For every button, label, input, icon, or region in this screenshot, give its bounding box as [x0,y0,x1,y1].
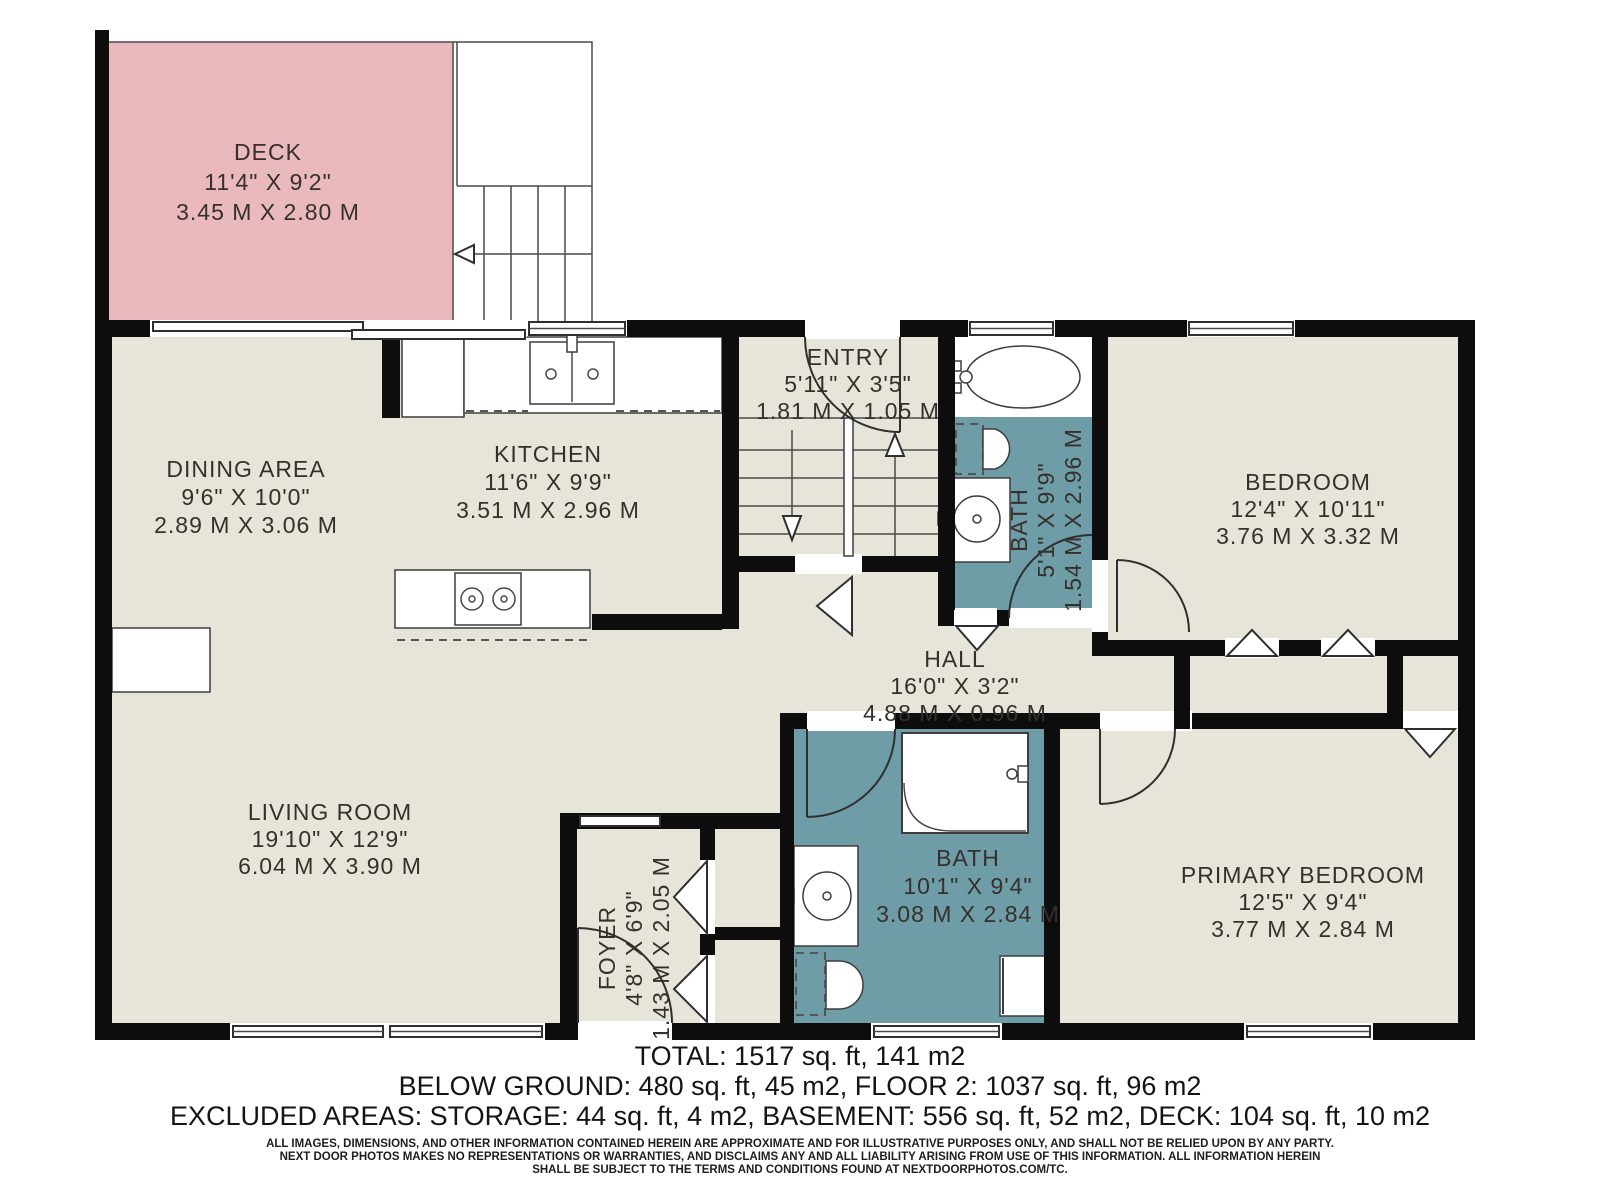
living-label: LIVING ROOM [248,799,412,825]
bath-main-dims-metric: 3.08 M X 2.84 M [876,901,1060,927]
exterior-stairs [455,186,592,322]
entry-dims-imperial: 5'11" X 3'5" [784,371,911,397]
bathtub [966,346,1080,408]
primary-dims-metric: 3.77 M X 2.84 M [1211,916,1395,942]
summary-excluded: EXCLUDED AREAS: STORAGE: 44 sq. ft, 4 m2… [0,1101,1600,1131]
hall-dims-metric: 4.88 M X 0.96 M [863,700,1047,726]
bath-main-label: BATH [936,845,1000,871]
entry-dims-metric: 1.81 M X 1.05 M [756,398,940,424]
living-dims-metric: 6.04 M X 3.90 M [238,853,422,879]
disclaimer-line-1: ALL IMAGES, DIMENSIONS, AND OTHER INFORM… [0,1138,1600,1151]
living-room-window [230,1023,545,1040]
floorplan-page: DECK 11'4" X 9'2" 3.45 M X 2.80 M DINING… [0,0,1600,1200]
patio-sliding-door [150,320,527,339]
bath-upper-window [970,322,1053,335]
dining-label: DINING AREA [166,456,325,482]
bedroom-dims-imperial: 12'4" X 10'11" [1230,496,1385,522]
summary-total: TOTAL: 1517 sq. ft, 141 m2 [0,1041,1600,1071]
deck-dims-imperial: 11'4" X 9'2" [204,169,331,195]
hall-label: HALL [924,646,986,672]
disclaimer-line-2: NEXT DOOR PHOTOS MAKES NO REPRESENTATION… [0,1151,1600,1164]
room-deck [108,42,592,322]
fireplace [112,628,210,692]
bath-upper-dims-metric: 1.54 M X 2.96 M [1060,428,1086,612]
bedroom-window [1189,322,1293,335]
deck-outline [453,42,592,322]
primary-label: PRIMARY BEDROOM [1181,862,1425,888]
stove [455,573,521,625]
foyer-dims-metric: 1.43 M X 2.05 M [648,856,674,1040]
foyer-label: FOYER [594,906,620,990]
living-dims-imperial: 19'10" X 12'9" [252,826,409,852]
deck-dims-metric: 3.45 M X 2.80 M [176,199,360,225]
kitchen-window [529,322,625,335]
bedroom-dims-metric: 3.76 M X 3.32 M [1216,523,1400,549]
kitchen-dims-metric: 3.51 M X 2.96 M [456,497,640,523]
summary-below-ground: BELOW GROUND: 480 sq. ft, 45 m2, FLOOR 2… [0,1071,1600,1101]
kitchen-label: KITCHEN [494,441,602,467]
foyer-sidelite-window [580,816,660,826]
dining-dims-imperial: 9'6" X 10'0" [181,484,310,510]
bath-main-window [874,1026,999,1037]
linen-cabinet [1000,956,1045,1016]
disclaimer-line-3: SHALL BE SUBJECT TO THE TERMS AND CONDIT… [0,1164,1600,1177]
foyer-dims-imperial: 4'8" X 6'9" [621,890,647,1005]
bath-upper-label: BATH [1006,488,1032,552]
shower-head-icon [1018,766,1028,782]
stair-railing [844,418,853,556]
area-summary: TOTAL: 1517 sq. ft, 141 m2 BELOW GROUND:… [0,1041,1600,1177]
bath-main-dims-imperial: 10'1" X 9'4" [903,873,1032,899]
disclaimer: ALL IMAGES, DIMENSIONS, AND OTHER INFORM… [0,1138,1600,1177]
kitchen-dims-imperial: 11'6" X 9'9" [484,469,611,495]
deck-label: DECK [234,139,302,165]
stair-direction-arrow-icon [455,245,474,263]
bedroom-label: BEDROOM [1245,469,1371,495]
entry-label: ENTRY [807,344,890,370]
shower [902,733,1028,833]
hall-dims-imperial: 16'0" X 3'2" [890,673,1019,699]
refrigerator [402,339,464,417]
primary-bedroom-window [1247,1026,1370,1037]
bath-upper-dims-imperial: 5'1" X 9'9" [1033,462,1059,577]
floorplan-drawing: DECK 11'4" X 9'2" 3.45 M X 2.80 M DINING… [0,0,1600,1040]
kitchen-sink [530,334,614,404]
faucet-icon [567,334,577,352]
dining-dims-metric: 2.89 M X 3.06 M [154,512,338,538]
primary-dims-imperial: 12'5" X 9'4" [1238,889,1367,915]
